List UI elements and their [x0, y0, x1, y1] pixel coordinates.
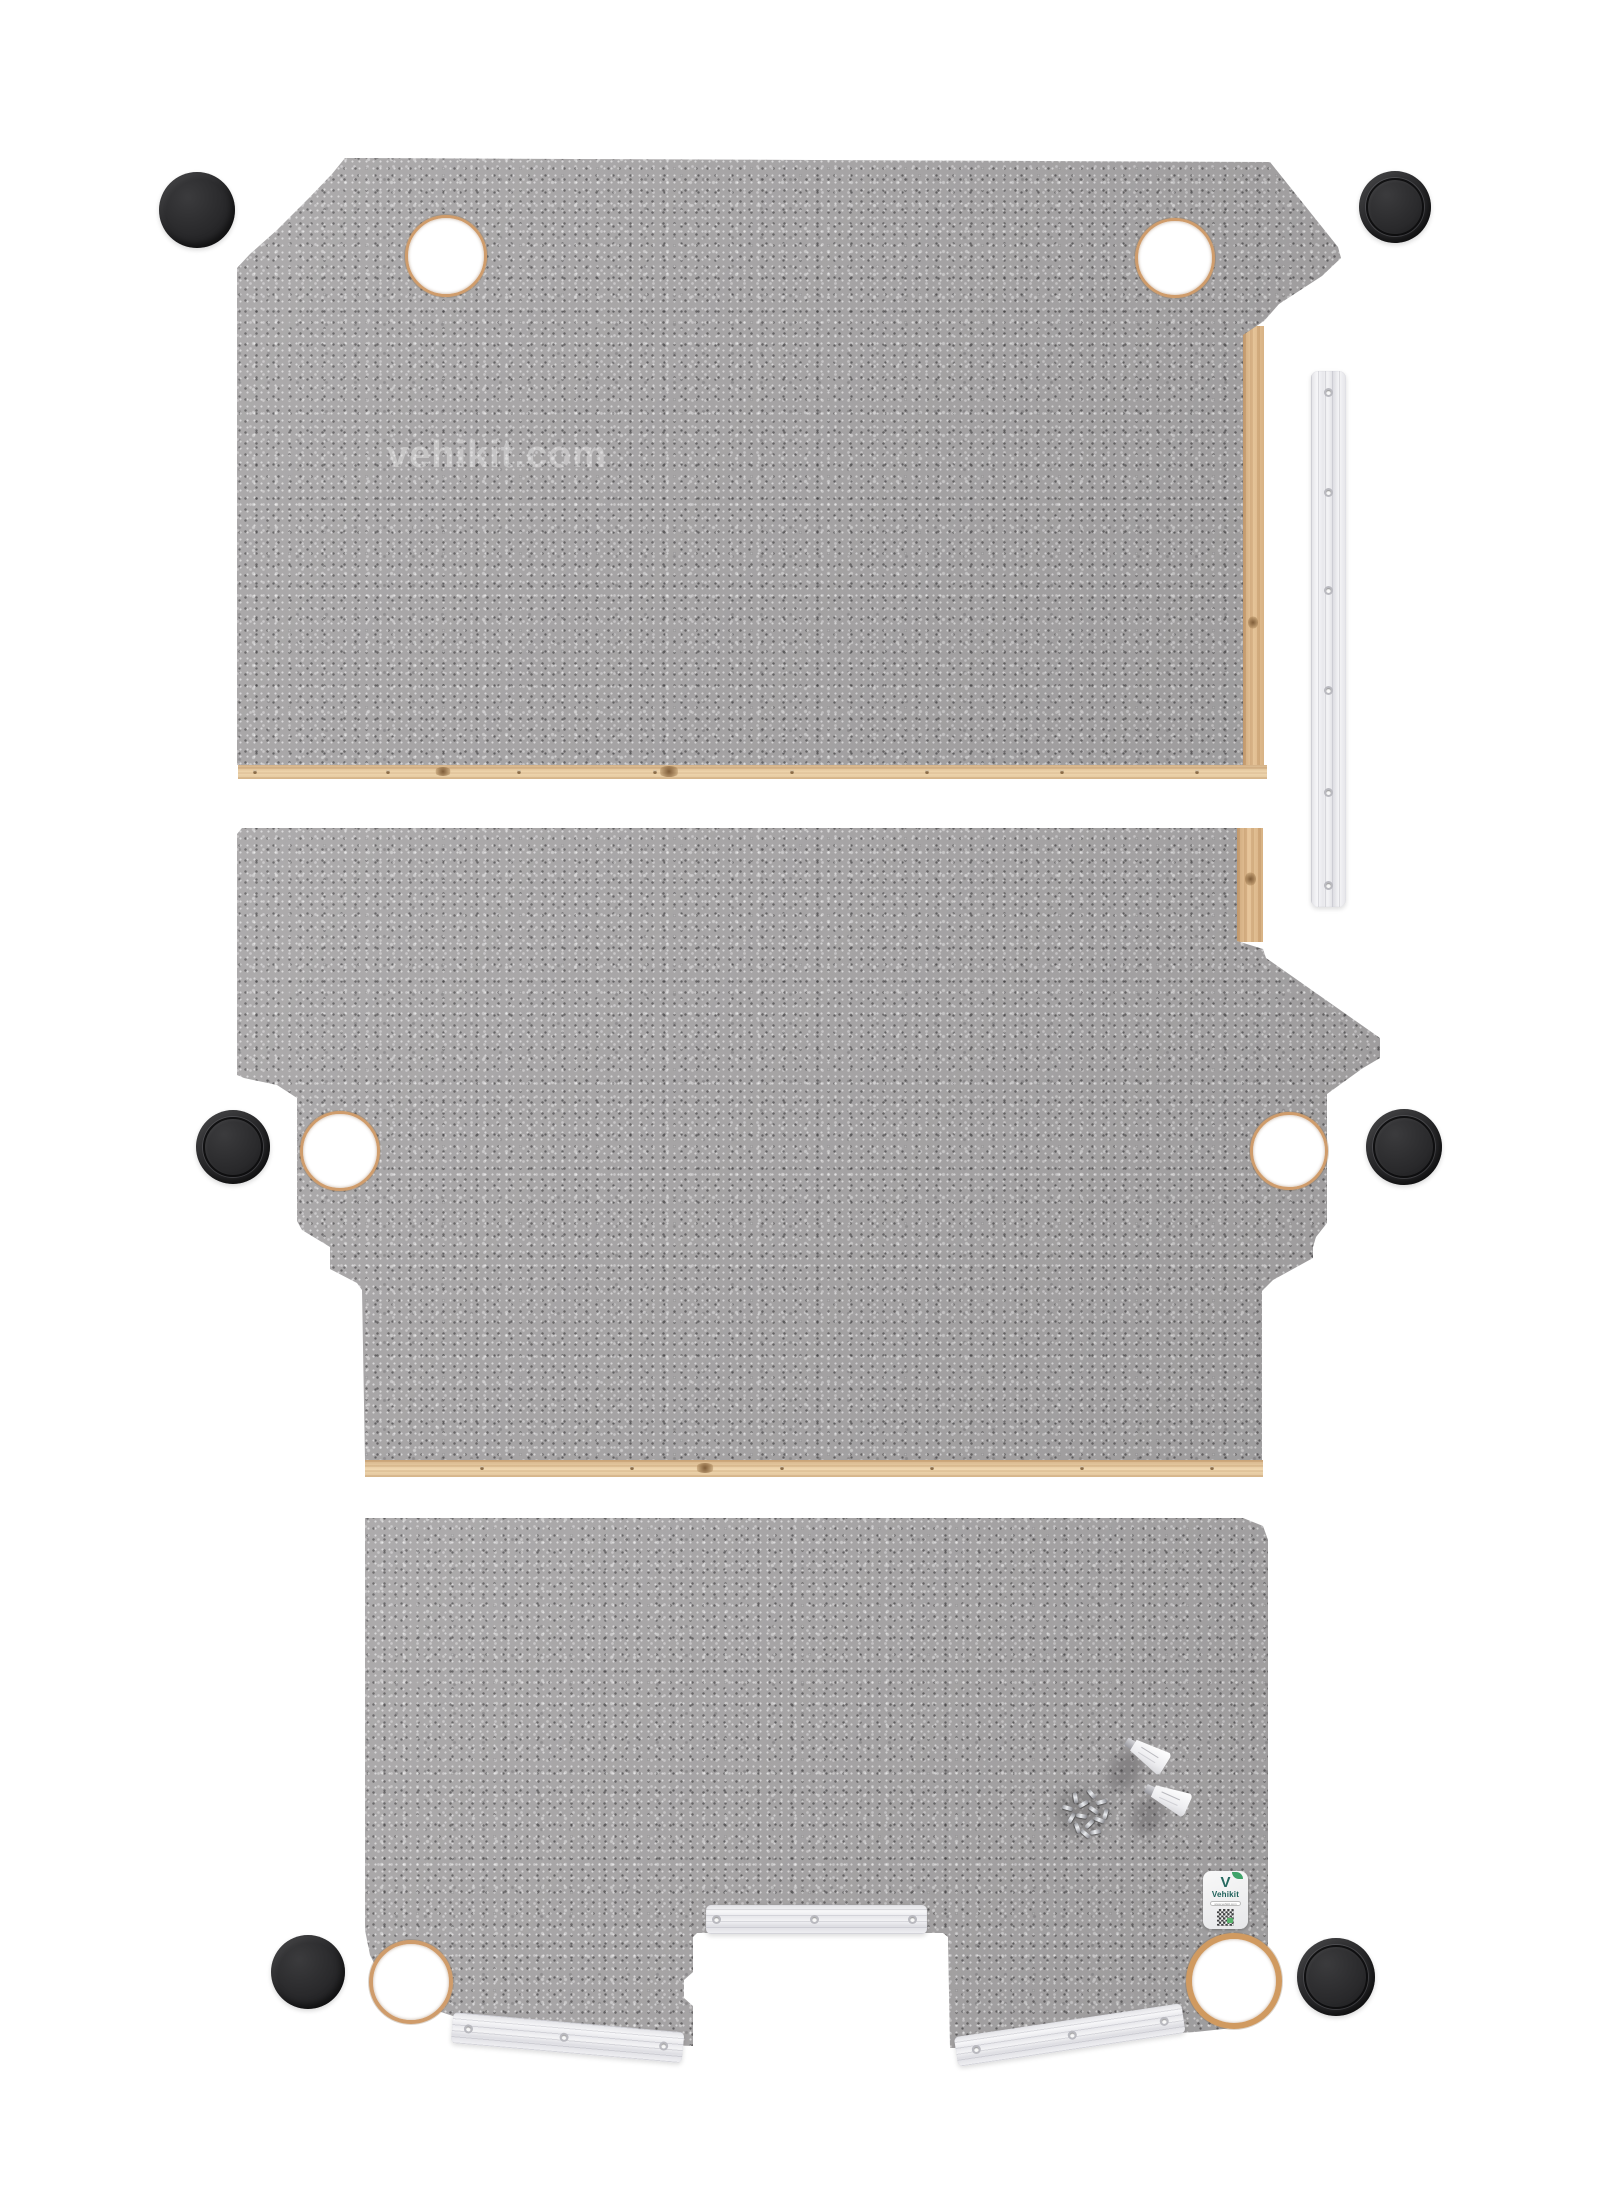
screw-hole	[1080, 1466, 1084, 1470]
product-photo: vehikit.com	[0, 0, 1600, 2209]
wood-knot	[658, 766, 680, 777]
edge-trim-strip-vertical	[1311, 371, 1346, 907]
panel-surface	[365, 1518, 1270, 2053]
screw-hole	[1161, 2019, 1167, 2025]
screw	[1086, 1789, 1096, 1800]
screw-hole	[790, 770, 794, 774]
screw-hole	[910, 1917, 915, 1922]
qr-code-icon	[1217, 1909, 1234, 1926]
blanking-cap	[1297, 1938, 1375, 2016]
floor-hole	[405, 215, 487, 297]
screw-hole	[1326, 790, 1331, 795]
screw-hole	[1326, 688, 1331, 693]
wood-knot	[1248, 616, 1258, 629]
vehikit-sticker: V Vehikit www.vehikit.com	[1203, 1871, 1248, 1929]
panel-surface	[237, 828, 1382, 1478]
blanking-cap	[271, 1935, 345, 2009]
floor-hole	[1250, 1112, 1328, 1190]
screw-hole	[1060, 770, 1064, 774]
plywood-edge-right	[1237, 828, 1263, 942]
screw	[1088, 1805, 1099, 1815]
screw-hole	[466, 2026, 471, 2031]
screw-hole	[517, 770, 521, 774]
screw-hole	[974, 2047, 980, 2053]
plywood-edge-bottom	[365, 1460, 1263, 1477]
wood-knot	[695, 1463, 715, 1473]
threshold-strip-center	[706, 1905, 927, 1934]
floor-hole	[1186, 1933, 1282, 2029]
floor-hole	[1135, 218, 1215, 298]
screw-hole	[780, 1466, 784, 1470]
screw	[1073, 1792, 1079, 1804]
floor-panel-middle	[237, 828, 1382, 1478]
screw	[1076, 1813, 1088, 1819]
wood-knot	[1245, 872, 1256, 886]
screw-hole	[925, 770, 929, 774]
screw-hole	[1326, 490, 1331, 495]
sticker-brand-text: Vehikit	[1212, 1890, 1239, 1899]
qr-green-mark	[1227, 1918, 1233, 1923]
screw	[1084, 1819, 1095, 1830]
floor-hole	[369, 1940, 453, 2024]
screw-hole	[714, 1917, 719, 1922]
screw-hole	[386, 770, 390, 774]
screw-hole	[1210, 1466, 1214, 1470]
floor-panel-front: vehikit.com	[237, 158, 1347, 779]
screw-hole	[1326, 390, 1331, 395]
plywood-edge-right	[1243, 326, 1264, 765]
screw-hole	[630, 1466, 634, 1470]
plywood-edge-bottom	[238, 765, 1267, 779]
wood-knot	[434, 767, 452, 776]
leaf-icon	[1232, 1872, 1243, 1879]
vehikit-logo-icon: V	[1220, 1874, 1230, 1889]
floor-hole	[300, 1111, 380, 1191]
screw-hole	[480, 1466, 484, 1470]
screws-pile	[1060, 1788, 1115, 1838]
blanking-cap	[196, 1110, 270, 1184]
screw-hole	[930, 1466, 934, 1470]
screw	[1102, 1808, 1109, 1820]
screw-hole	[561, 2035, 566, 2040]
screw-hole	[1069, 2032, 1075, 2038]
watermark: vehikit.com	[387, 434, 607, 477]
blanking-cap	[1366, 1109, 1442, 1185]
blanking-cap	[159, 172, 235, 248]
screw	[1096, 1799, 1108, 1806]
floor-panel-rear: V Vehikit www.vehikit.com	[365, 1518, 1270, 2053]
screw-hole	[661, 2043, 666, 2048]
screw-hole	[812, 1917, 817, 1922]
screw-hole	[253, 770, 257, 774]
screw-hole	[1195, 770, 1199, 774]
screw	[1090, 1829, 1102, 1835]
logo-v-letter: V	[1220, 1874, 1230, 1891]
blanking-cap	[1359, 171, 1431, 243]
screw-hole	[653, 770, 657, 774]
screw-hole	[1326, 588, 1331, 593]
sticker-url-pill: www.vehikit.com	[1210, 1901, 1241, 1906]
screw	[1062, 1805, 1074, 1812]
